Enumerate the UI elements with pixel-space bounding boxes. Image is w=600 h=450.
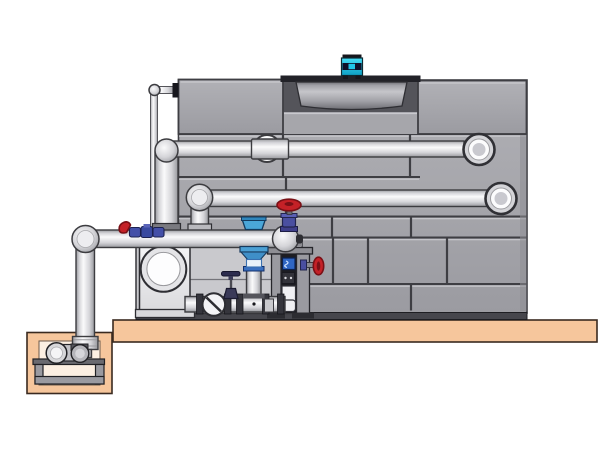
concrete-slab	[113, 320, 597, 342]
butterfly-valve	[242, 217, 267, 230]
drain-valve-stem	[230, 280, 232, 289]
manifold-bolt	[252, 302, 255, 305]
upper-pipe-end-cap	[464, 134, 495, 165]
controller-box	[283, 258, 296, 270]
gate-valve-body	[283, 217, 296, 228]
fan-motor-foot	[343, 76, 348, 80]
tower-top-left-panel	[179, 80, 284, 135]
fan-motor-window	[349, 64, 356, 69]
blue-fitting	[141, 227, 153, 238]
upper-pipe-run	[166, 141, 464, 157]
gate-valve-hub	[285, 202, 294, 206]
gate-valve	[277, 199, 301, 231]
blue-fitting	[153, 228, 164, 238]
cone-spool	[247, 260, 262, 268]
frame-foot	[292, 313, 314, 319]
lower-pipe-run	[199, 190, 489, 207]
main-pipe-elbow-hub	[77, 231, 94, 248]
sump-pump-volute-cap	[75, 349, 85, 359]
manifold-flange	[278, 294, 285, 314]
side-valve-bonnet	[301, 260, 307, 270]
drain-valve-body	[224, 289, 238, 299]
manifold-stub	[265, 299, 274, 312]
pump-suction-eye	[147, 252, 180, 285]
lower-pipe-elbow-hub	[192, 190, 208, 206]
fitting-cap	[144, 224, 151, 228]
fan-motor	[342, 55, 363, 80]
makeup-wall-flange	[173, 83, 179, 98]
blue-fitting	[130, 228, 141, 238]
makeup-elbow	[149, 85, 160, 96]
illustration-canvas	[0, 0, 600, 450]
ground	[27, 320, 597, 394]
fan-shroud	[296, 82, 407, 110]
stand-bottom-bar	[35, 377, 104, 385]
cone-top-flange	[240, 247, 268, 253]
lower-pipe-end-cap	[486, 183, 517, 214]
junction-box-dot	[284, 277, 286, 279]
junction-box	[282, 273, 295, 284]
fan-motor-foot	[356, 76, 361, 80]
junction-box-dot	[290, 277, 292, 279]
fan-deck	[281, 76, 421, 83]
side-valve-hub	[317, 261, 321, 270]
end-elbow-nub	[296, 235, 303, 244]
manifold-tee-top	[243, 294, 265, 299]
drain-valve-nut	[229, 276, 234, 280]
left-riser-pipe	[155, 152, 178, 232]
cooling-tower-diagram	[0, 0, 600, 450]
pipe-coupling-sleeve	[252, 139, 289, 159]
main-pipe-run	[85, 230, 288, 248]
upper-pipe-elbow	[155, 139, 178, 162]
sump-pump-motor-cap	[51, 347, 63, 359]
butterfly-valve-cap	[242, 217, 267, 221]
tower-top-right-panel	[418, 81, 527, 135]
drain-valve-handle	[222, 272, 241, 277]
sump-riser-pipe	[76, 246, 95, 340]
fan-recess-wall	[283, 112, 418, 134]
